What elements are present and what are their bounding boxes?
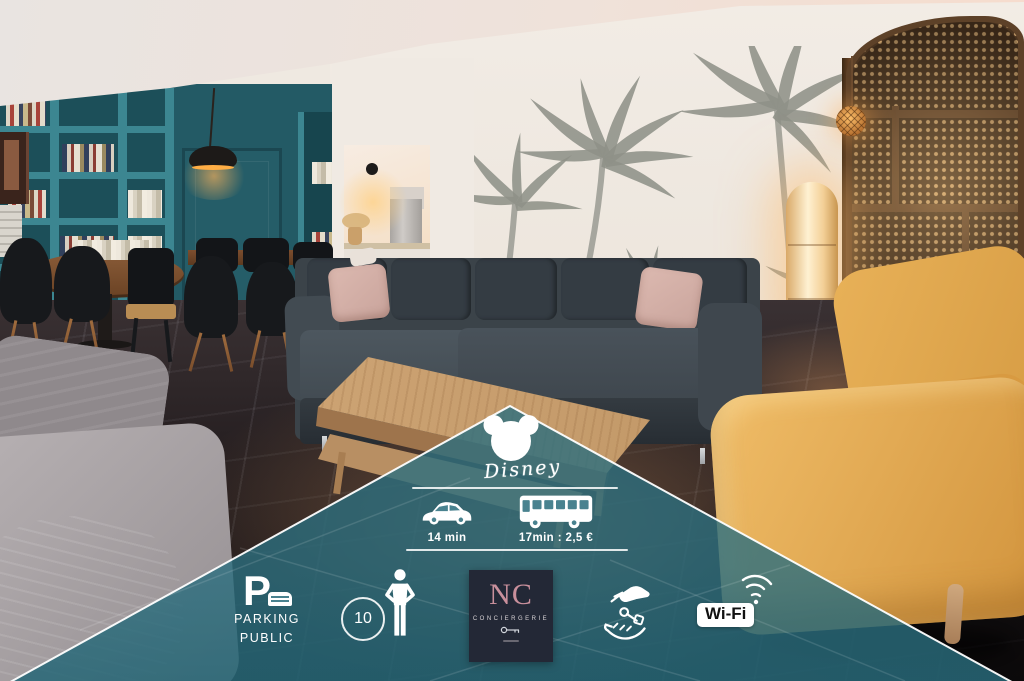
capacity-badge: 10 <box>341 597 385 641</box>
concierge-monogram: NC <box>489 576 533 614</box>
divider <box>406 549 628 551</box>
key-handover-icon <box>598 582 660 644</box>
bus-icon <box>517 492 595 530</box>
parking-car-icon <box>268 592 292 606</box>
logo-rule <box>503 640 519 642</box>
divider <box>412 487 618 489</box>
listing-photo: Disney 14 min 17min : 2,5 € P <box>0 0 1024 681</box>
bus-travel-info: 17min : 2,5 € <box>506 532 606 544</box>
parking-line1: PARKING <box>217 610 317 629</box>
wifi-badge: Wi-Fi <box>697 603 754 627</box>
parking-icon: P <box>243 570 271 612</box>
info-overlay-content: Disney 14 min 17min : 2,5 € P <box>0 0 1024 681</box>
car-icon <box>421 498 473 526</box>
parking-label: PARKING PUBLIC <box>217 610 317 649</box>
mickey-ears-icon <box>483 413 539 463</box>
capacity-count: 10 <box>354 610 372 628</box>
disney-brand: Disney <box>483 457 544 483</box>
concierge-name: CONCIERGERIE <box>473 616 549 622</box>
person-icon <box>382 568 418 646</box>
car-travel-time: 14 min <box>412 532 482 544</box>
parking-line2: PUBLIC <box>217 629 317 648</box>
concierge-logo: NC CONCIERGERIE <box>469 570 553 662</box>
key-icon <box>500 626 522 634</box>
